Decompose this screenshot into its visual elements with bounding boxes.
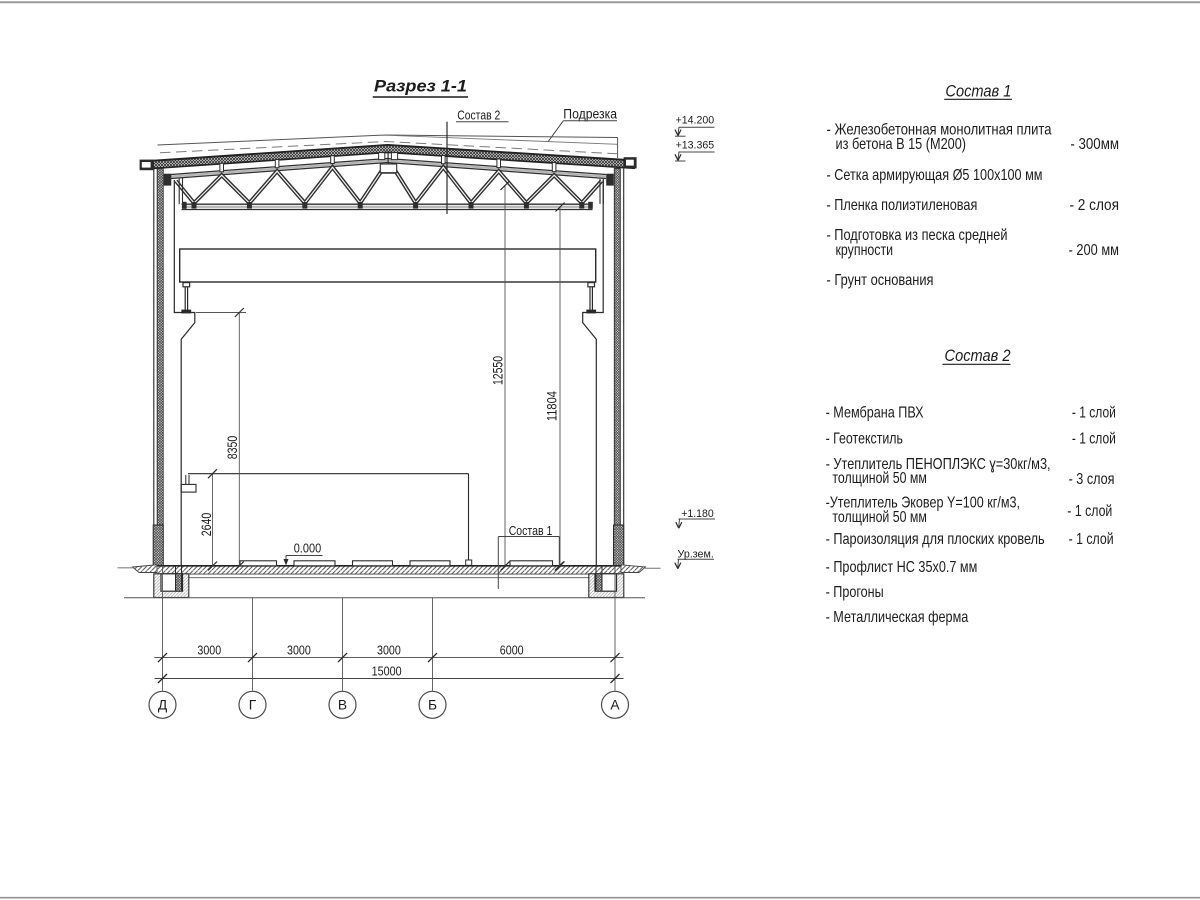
svg-text:- Пленка полиэтиленовая: - Пленка полиэтиленовая xyxy=(827,197,978,214)
svg-text:+1.180: +1.180 xyxy=(681,508,714,520)
svg-text:толщиной 50 мм: толщиной 50 мм xyxy=(832,470,927,487)
svg-text:- 200 мм: - 200 мм xyxy=(1069,242,1119,259)
svg-text:А: А xyxy=(610,698,620,713)
svg-text:2640: 2640 xyxy=(199,513,214,537)
svg-text:3000: 3000 xyxy=(377,643,401,658)
svg-text:- Мембрана ПВХ: - Мембрана ПВХ xyxy=(826,404,924,421)
svg-text:+14.200: +14.200 xyxy=(676,114,715,126)
svg-text:Б: Б xyxy=(428,698,437,713)
svg-text:3000: 3000 xyxy=(287,643,311,658)
svg-text:Ур.зем.: Ур.зем. xyxy=(678,549,714,561)
svg-text:- Металлическая ферма: - Металлическая ферма xyxy=(826,609,969,626)
svg-text:11804: 11804 xyxy=(544,391,559,421)
svg-text:- Сетка армирующая Ø5 100х100: - Сетка армирующая Ø5 100х100 мм xyxy=(827,167,1043,184)
svg-text:Г: Г xyxy=(249,698,257,713)
svg-text:Разрез 1-1: Разрез 1-1 xyxy=(374,76,467,95)
svg-text:- 2 слоя: - 2 слоя xyxy=(1070,197,1120,214)
svg-text:Состав 2: Состав 2 xyxy=(945,347,1011,365)
svg-text:толщиной 50 мм: толщиной 50 мм xyxy=(832,509,927,526)
svg-text:- 3 слоя: - 3 слоя xyxy=(1069,471,1115,488)
svg-text:Состав 1: Состав 1 xyxy=(509,523,553,538)
svg-text:- 300мм: - 300мм xyxy=(1070,136,1119,153)
svg-text:В: В xyxy=(338,698,347,713)
svg-text:Состав 1: Состав 1 xyxy=(945,82,1011,100)
svg-text:+13.365: +13.365 xyxy=(676,139,715,151)
svg-text:- Профлист НС 35х0.7 мм: - Профлист НС 35х0.7 мм xyxy=(826,559,978,576)
svg-text:из бетона В 15 (М200): из бетона В 15 (М200) xyxy=(836,136,967,153)
svg-text:3000: 3000 xyxy=(197,643,221,658)
svg-text:- 1 слой: - 1 слой xyxy=(1067,503,1112,520)
svg-text:- Прогоны: - Прогоны xyxy=(826,584,884,601)
svg-text:- 1 слой: - 1 слой xyxy=(1069,531,1114,548)
svg-text:Состав 2: Состав 2 xyxy=(457,107,500,122)
svg-text:- Пароизоляция для плоских кро: - Пароизоляция для плоских кровель xyxy=(826,531,1045,548)
svg-text:6000: 6000 xyxy=(500,643,524,658)
svg-text:Подрезка: Подрезка xyxy=(563,106,617,121)
svg-text:8350: 8350 xyxy=(225,436,240,460)
svg-text:- 1 слой: - 1 слой xyxy=(1072,404,1116,421)
svg-text:12550: 12550 xyxy=(491,356,506,385)
svg-text:Д: Д xyxy=(158,698,168,713)
svg-text:- Геотекстиль: - Геотекстиль xyxy=(826,431,903,448)
svg-text:- 1 слой: - 1 слой xyxy=(1072,431,1116,448)
svg-text:0.000: 0.000 xyxy=(294,541,322,556)
svg-text:15000: 15000 xyxy=(372,663,402,678)
svg-text:- Грунт основания: - Грунт основания xyxy=(827,272,934,289)
svg-text:крупности: крупности xyxy=(836,242,894,259)
